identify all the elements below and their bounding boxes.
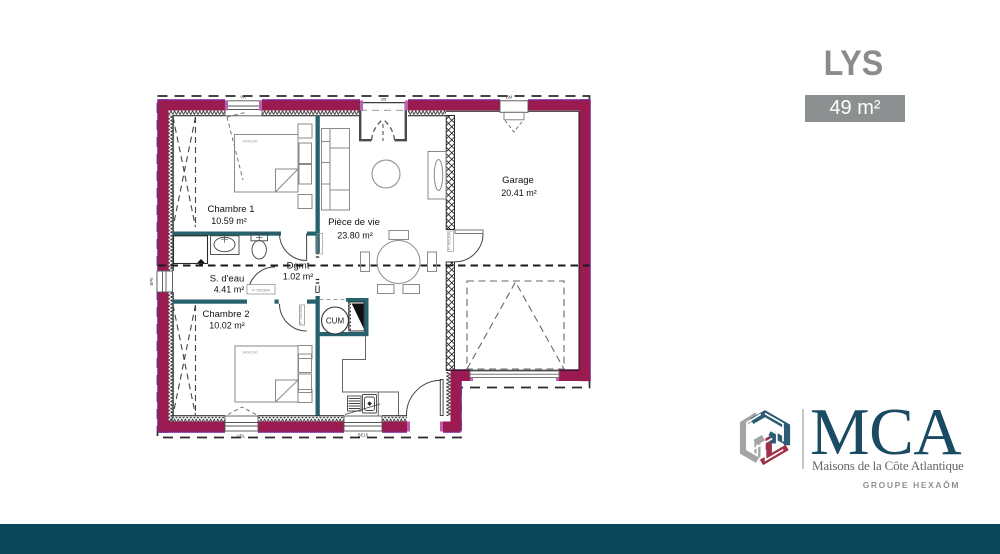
svg-text:BP6: BP6 bbox=[149, 277, 154, 286]
svg-text:P 75X204: P 75X204 bbox=[447, 231, 452, 249]
svg-text:S. d'eau: S. d'eau bbox=[210, 274, 245, 285]
svg-text:1.02 m²: 1.02 m² bbox=[283, 272, 314, 282]
svg-text:BM: BM bbox=[506, 95, 513, 100]
svg-text:VR: VR bbox=[240, 95, 246, 100]
svg-text:140x190: 140x190 bbox=[242, 139, 258, 144]
svg-text:BE10: BE10 bbox=[358, 433, 369, 438]
svg-text:10.59 m²: 10.59 m² bbox=[211, 216, 247, 226]
svg-text:VBL: VBL bbox=[237, 434, 246, 439]
svg-text:Chambre 2: Chambre 2 bbox=[203, 309, 250, 320]
svg-text:CUM: CUM bbox=[326, 317, 345, 326]
svg-text:Dgmt: Dgmt bbox=[287, 261, 310, 272]
svg-text:23.80 m²: 23.80 m² bbox=[337, 231, 373, 241]
svg-text:4.41 m²: 4.41 m² bbox=[214, 285, 245, 295]
svg-text:Pièce de vie: Pièce de vie bbox=[328, 217, 380, 228]
svg-text:Garage: Garage bbox=[502, 175, 534, 186]
svg-text:VR: VR bbox=[381, 97, 387, 102]
svg-text:10.02 m²: 10.02 m² bbox=[209, 321, 245, 331]
svg-text:P 73X204: P 73X204 bbox=[252, 288, 270, 293]
svg-text:P 73X204: P 73X204 bbox=[298, 305, 303, 323]
svg-text:Chambre 1: Chambre 1 bbox=[208, 204, 255, 215]
svg-text:20.41 m²: 20.41 m² bbox=[501, 188, 537, 198]
svg-text:140x190: 140x190 bbox=[242, 350, 258, 355]
